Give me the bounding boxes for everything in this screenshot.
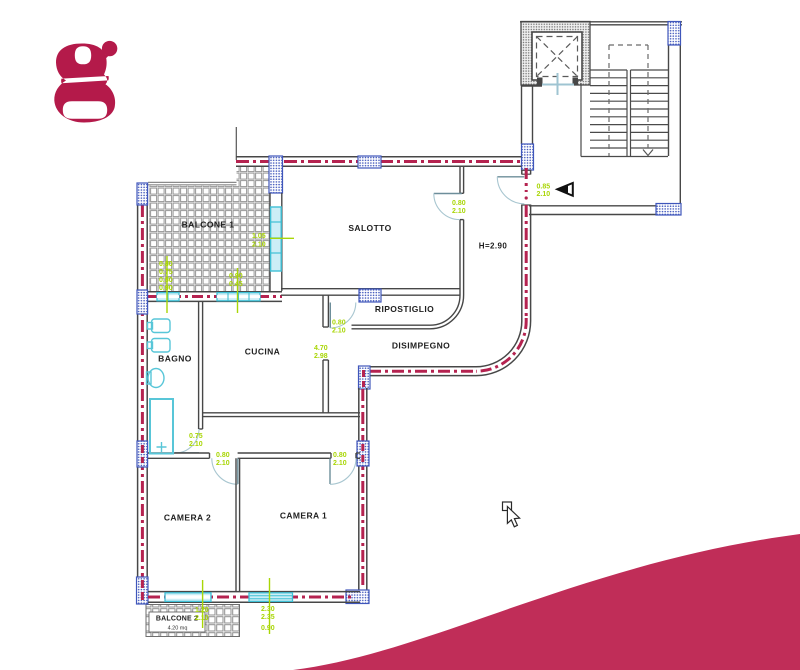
svg-text:DISIMPEGNO: DISIMPEGNO [392,341,450,351]
svg-text:2.10: 2.10 [332,328,346,335]
svg-text:2.98: 2.98 [314,353,328,360]
svg-text:2.10: 2.10 [333,460,347,467]
svg-text:0.90: 0.90 [159,285,173,292]
svg-text:2.35: 2.35 [261,614,275,621]
svg-text:CAMERA 2: CAMERA 2 [164,513,211,523]
svg-text:H=2.90: H=2.90 [479,242,508,251]
svg-text:0.75: 0.75 [189,433,203,440]
svg-text:BAGNO: BAGNO [158,354,192,364]
svg-text:1.20: 1.20 [195,607,209,614]
svg-text:0.80: 0.80 [452,200,466,207]
svg-text:0.80: 0.80 [333,452,347,459]
svg-text:2.10: 2.10 [252,242,266,249]
svg-text:2.10: 2.10 [195,615,209,622]
svg-text:BALCONE 1: BALCONE 1 [182,220,235,230]
svg-text:RIPOSTIGLIO: RIPOSTIGLIO [375,304,434,314]
svg-text:0.50: 0.50 [159,277,173,284]
svg-text:0.75: 0.75 [159,269,173,276]
svg-text:2.10: 2.10 [452,208,466,215]
svg-text:0.90: 0.90 [261,625,275,632]
svg-text:SALOTTO: SALOTTO [348,223,391,233]
svg-text:2.30: 2.30 [261,606,275,613]
svg-text:0.85: 0.85 [537,184,551,191]
svg-text:1.05: 1.05 [252,233,266,240]
svg-text:CUCINA: CUCINA [245,347,280,357]
svg-text:0.80: 0.80 [332,320,346,327]
svg-text:2.10: 2.10 [189,441,203,448]
svg-text:4.70: 4.70 [314,345,328,352]
svg-text:BALCONE 2: BALCONE 2 [156,616,198,623]
svg-text:4.20 mq: 4.20 mq [168,626,188,632]
svg-text:0.80: 0.80 [159,261,173,268]
svg-text:0.45: 0.45 [229,281,243,288]
svg-text:0.90: 0.90 [229,273,243,280]
svg-text:2.10: 2.10 [537,191,551,198]
svg-text:0.80: 0.80 [216,452,230,459]
svg-text:2.10: 2.10 [216,460,230,467]
svg-text:CAMERA 1: CAMERA 1 [280,511,327,521]
